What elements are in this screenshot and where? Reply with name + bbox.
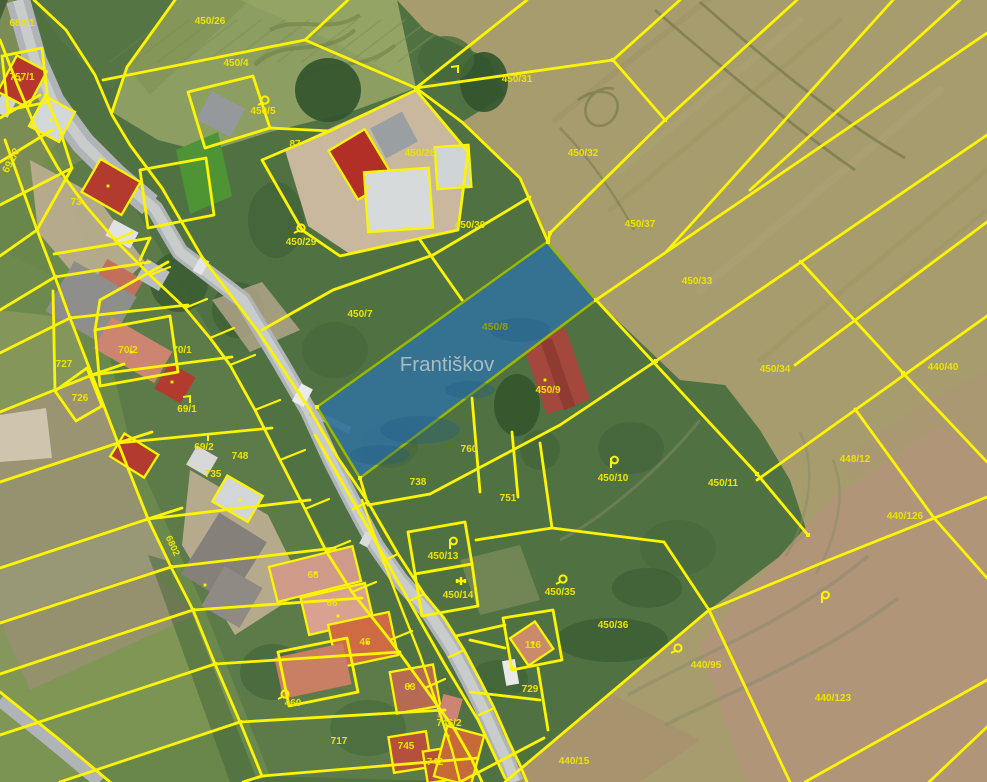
svg-text:440/123: 440/123: [815, 693, 852, 704]
svg-text:757/1: 757/1: [9, 72, 34, 83]
svg-text:748: 748: [232, 451, 249, 462]
svg-text:450/9: 450/9: [535, 385, 560, 396]
svg-text:727: 727: [56, 359, 73, 370]
svg-text:729: 729: [522, 684, 539, 695]
svg-text:450/37: 450/37: [625, 219, 656, 230]
svg-text:760: 760: [461, 444, 478, 455]
svg-text:440/40: 440/40: [928, 362, 959, 373]
svg-text:450/5: 450/5: [250, 106, 275, 117]
svg-text:450/34: 450/34: [760, 364, 791, 375]
svg-text:450/10: 450/10: [598, 473, 629, 484]
svg-text:742: 742: [427, 757, 444, 768]
svg-text:116: 116: [525, 640, 542, 651]
svg-text:460: 460: [285, 698, 302, 709]
svg-text:450/28: 450/28: [405, 148, 436, 159]
svg-text:738: 738: [410, 477, 427, 488]
svg-text:440/95: 440/95: [691, 660, 722, 671]
svg-text:450/29: 450/29: [286, 237, 317, 248]
svg-text:746/2: 746/2: [436, 718, 461, 729]
svg-text:450/7: 450/7: [347, 309, 372, 320]
svg-text:726: 726: [72, 393, 89, 404]
svg-text:450/31: 450/31: [502, 74, 533, 85]
svg-text:682/1: 682/1: [9, 18, 34, 29]
svg-text:69/1: 69/1: [177, 404, 197, 415]
svg-text:440/15: 440/15: [559, 756, 590, 767]
svg-text:450/11: 450/11: [708, 478, 738, 489]
svg-text:450/32: 450/32: [568, 148, 599, 159]
svg-text:735: 735: [205, 469, 222, 480]
svg-text:68: 68: [307, 570, 319, 581]
svg-text:450/36: 450/36: [598, 620, 629, 631]
svg-text:450/14: 450/14: [443, 590, 474, 601]
svg-text:66: 66: [326, 598, 338, 609]
svg-text:70/2: 70/2: [118, 345, 138, 356]
svg-text:450/13: 450/13: [428, 551, 459, 562]
svg-text:717: 717: [331, 736, 348, 747]
svg-text:448/12: 448/12: [840, 454, 871, 465]
svg-text:751: 751: [500, 493, 517, 504]
svg-text:87: 87: [289, 139, 301, 150]
svg-text:46: 46: [359, 637, 371, 648]
svg-text:450/30: 450/30: [455, 220, 486, 231]
svg-text:450/33: 450/33: [682, 276, 713, 287]
svg-text:450/26: 450/26: [195, 16, 226, 27]
svg-text:450/35: 450/35: [545, 587, 576, 598]
svg-text:70/1: 70/1: [172, 345, 192, 356]
svg-text:73: 73: [70, 197, 82, 208]
svg-text:745: 745: [398, 741, 415, 752]
svg-text:63: 63: [404, 682, 416, 693]
svg-text:440/126: 440/126: [887, 511, 924, 522]
svg-text:450/8: 450/8: [482, 321, 508, 333]
svg-text:69/2: 69/2: [194, 442, 214, 453]
svg-text:450/4: 450/4: [223, 58, 248, 69]
svg-text:Františkov: Františkov: [400, 353, 495, 376]
